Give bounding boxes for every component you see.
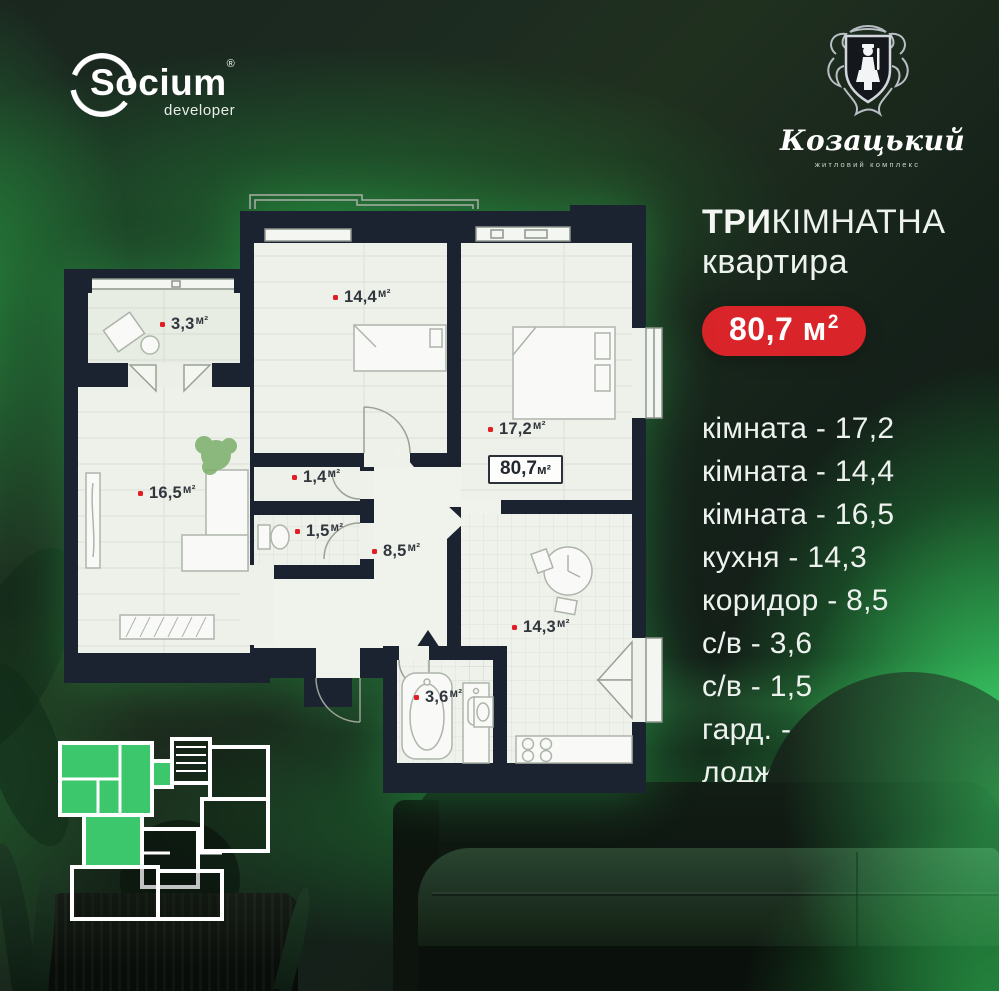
sofa-cushion-seam [856,852,858,948]
complex-tagline: житловий комплекс [780,160,955,169]
offer-subtitle: квартира [702,242,946,282]
neighbour-loggia-outline [250,195,478,209]
room-list-item: кухня - 14,3 [702,536,894,579]
plan-total-area-box: 80,7м² [488,455,563,484]
plan-label-loggia: 3,3м² [160,315,208,334]
socium-wordmark: Socium® [90,58,235,104]
plan-label-bedroom-2: 17,2м² [488,420,546,439]
floor-plan: 3,3м² 14,4м² 17,2м² 16,5м² 1,4м² 1,5м² 8… [64,191,664,825]
plan-label-wardrobe: 1,4м² [292,468,340,487]
poster-canvas: Socium® developer Козацький житлов [0,0,999,991]
plan-label-kitchen: 14,3м² [512,618,570,637]
room-list-item: кімната - 17,2 [702,407,894,450]
plan-label-corridor: 8,5м² [372,542,420,561]
mini-plan-stairwell [172,739,210,783]
socium-logo: Socium® developer [70,50,300,125]
socium-tagline: developer [164,102,235,119]
room-list-item: кімната - 14,4 [702,450,894,493]
sofa-seat-cushion [418,848,999,948]
kozatskyi-logo: Козацький житловий комплекс [780,24,955,164]
sofa-base [418,946,999,991]
offer-title: ТРИКІМНАТНА квартира [702,202,946,282]
radiator [120,615,214,639]
total-area-badge: 80,7 м2 [702,306,866,356]
plan-label-living: 16,5м² [138,484,196,503]
loggia-stool [141,336,159,354]
cossack-crest-icon [822,24,914,122]
room-list-item: кімната - 16,5 [702,493,894,536]
title-emphasis: ТРИ [702,203,771,241]
toilet [258,525,270,549]
floor-plan-drawing [64,191,664,825]
complex-name: Козацький [780,124,955,157]
registered-mark: ® [227,58,236,70]
plan-label-bedroom-1: 14,4м² [333,288,391,307]
room-list-item: коридор - 8,5 [702,579,894,622]
mini-floor-plan [50,733,282,935]
room-list-item: с/в - 3,6 [702,622,894,665]
plan-label-wc: 1,5м² [295,522,343,541]
title-rest: КІМНАТНА [771,203,945,241]
plan-label-bathroom: 3,6м² [414,688,462,707]
